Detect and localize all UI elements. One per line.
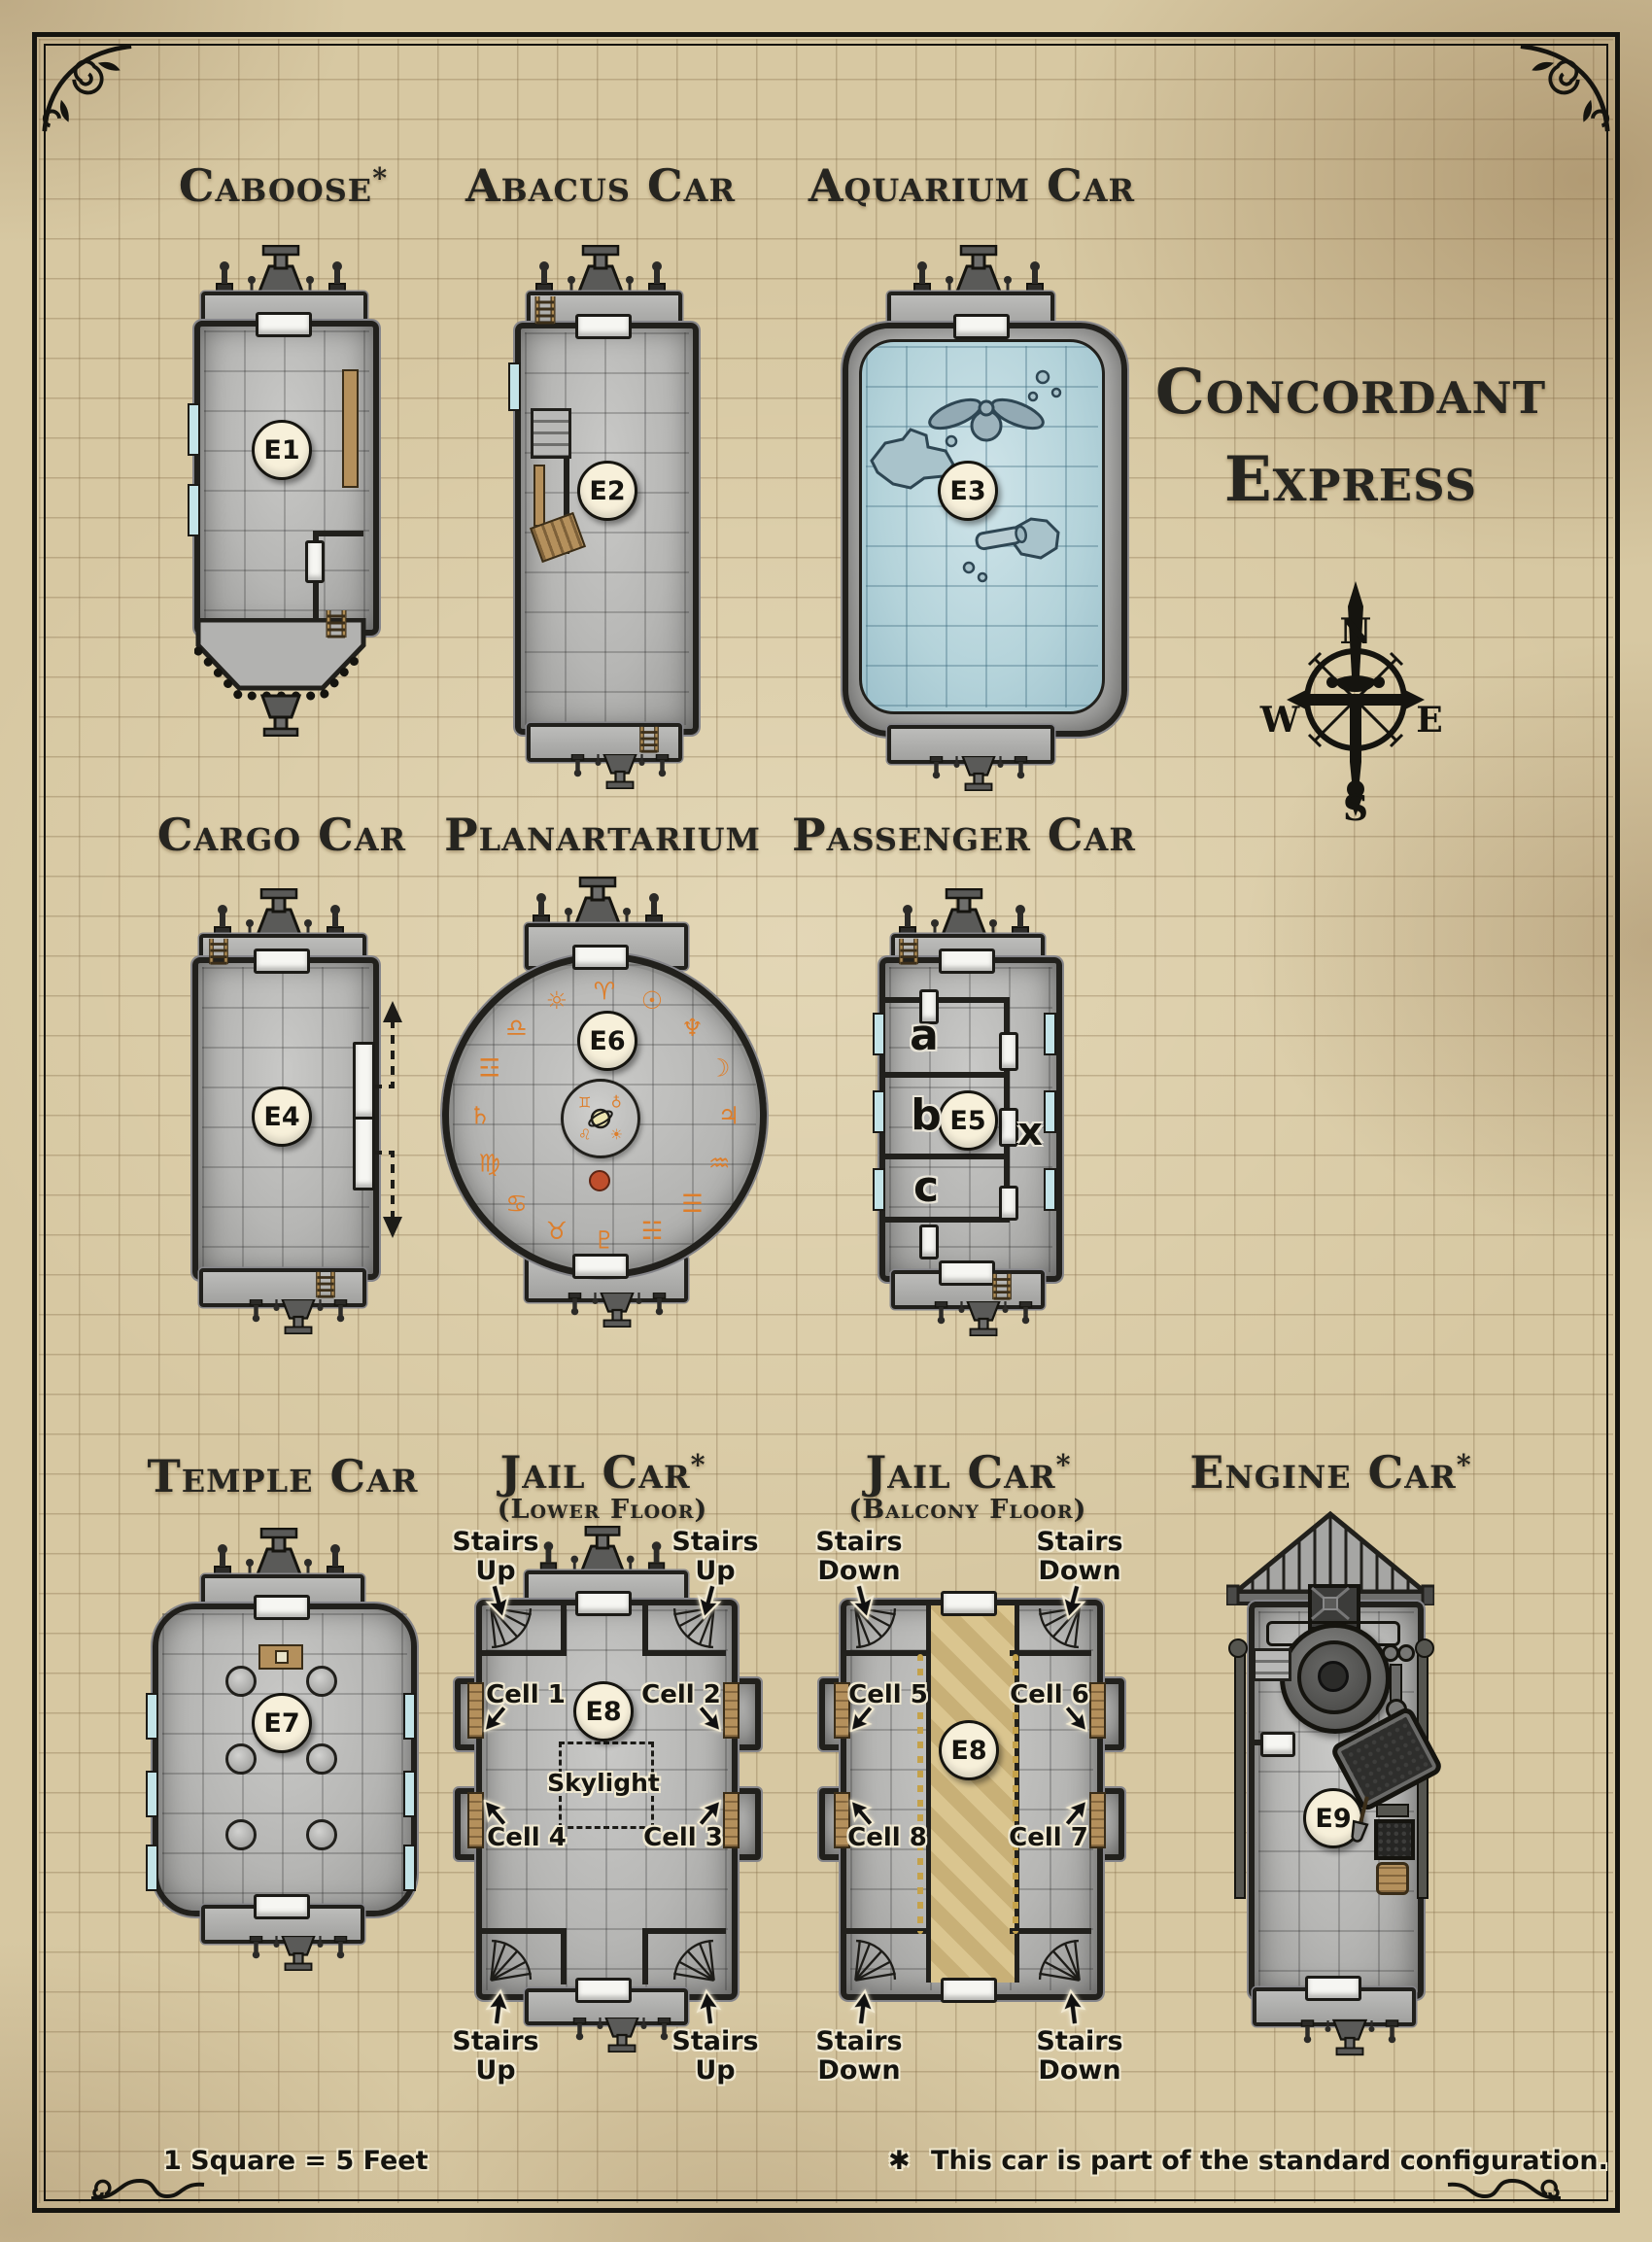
caboose-window: [188, 484, 200, 536]
planar-rune-icon: ♄: [469, 1102, 491, 1130]
passenger-room-divider: [885, 1217, 1010, 1223]
jail-balcony-title-text: Jail Car: [865, 1446, 1055, 1499]
map-title-line2: Express: [1224, 449, 1477, 511]
map-title-text2: Express: [1224, 443, 1477, 516]
temple-marker-text: E7: [263, 1708, 299, 1739]
planar-rune-icon: ☵: [641, 1217, 663, 1245]
stairs-word: Stairs: [449, 1528, 542, 1557]
temple-column: [225, 1743, 257, 1775]
planar-rune-icon: ☼: [546, 986, 568, 1015]
spiral-stairs-icon: [667, 1938, 721, 1983]
planartarium-marker-text: E6: [589, 1026, 625, 1056]
engine-rear-door: [1305, 1976, 1361, 2001]
stairs-dir: Down: [1033, 1557, 1126, 1586]
cell-door: [723, 1682, 740, 1739]
caboose-marker-text: E1: [263, 435, 299, 466]
abacus-window: [508, 362, 521, 411]
room-b-label: b: [911, 1090, 942, 1140]
jail-lower-rear-door: [575, 1978, 632, 2003]
temple-column: [225, 1666, 257, 1697]
stair-room-wall: [1010, 1650, 1091, 1656]
map-title-line1: Concordant: [1155, 362, 1546, 424]
cargo-side-door: [353, 1117, 375, 1190]
planar-rune-icon: ☽: [708, 1054, 730, 1083]
abacus-steps: [531, 408, 571, 459]
compass-west-label: W: [1260, 700, 1299, 741]
passenger-compartment-door: [919, 1224, 939, 1259]
temple-title: Temple Car: [147, 1454, 418, 1499]
jail-balcony-star: *: [1056, 1448, 1071, 1481]
planartarium-rear-door: [572, 1254, 629, 1279]
engine-marker-text: E9: [1315, 1804, 1351, 1834]
roof-coupler-icon: [201, 888, 357, 935]
caboose-title: Caboose*: [179, 163, 387, 208]
planartarium-title: Planartarium: [444, 812, 761, 857]
engine-rod-cap: [1228, 1638, 1248, 1658]
temple-title-text: Temple Car: [147, 1450, 418, 1502]
jail-lower-star: *: [691, 1448, 706, 1481]
stair-room-wall: [642, 1650, 726, 1656]
stair-room-wall: [642, 1605, 648, 1654]
temple-window: [403, 1771, 416, 1817]
engine-bolt: [1397, 1644, 1415, 1662]
stair-room-wall: [846, 1650, 928, 1656]
stairs-word: Stairs: [812, 2027, 906, 2056]
stairs-down-label: StairsDown: [812, 2027, 906, 2085]
jail-lower-title-text: Jail Car: [499, 1446, 690, 1499]
stairs-word: Stairs: [669, 2027, 762, 2056]
aquarium-title-text: Aquarium Car: [809, 159, 1135, 212]
cargo-marker-text: E4: [263, 1102, 299, 1132]
engine-crate: [1376, 1862, 1409, 1895]
bottom-coupler-icon: [925, 1301, 1042, 1336]
engine-title: Engine Car*: [1189, 1450, 1470, 1495]
abacus-front-door: [575, 314, 632, 339]
temple-window: [146, 1693, 158, 1740]
caboose-window: [188, 403, 200, 456]
roof-coupler-icon: [886, 888, 1042, 935]
caboose-cabin-wall: [313, 531, 363, 536]
stairs-down-label: StairsDown: [812, 1528, 906, 1585]
roof-coupler-icon: [201, 1528, 357, 1574]
cargo-title-text: Cargo Car: [157, 809, 406, 861]
planartarium-front-door: [572, 945, 629, 970]
aquarium-marker-text: E3: [949, 476, 985, 506]
stairs-up-label: StairsUp: [449, 1528, 542, 1585]
footnote-star-icon: ✱: [888, 2146, 911, 2176]
temple-window: [403, 1845, 416, 1891]
passenger-window: [1044, 1168, 1056, 1211]
scroll-wave-icon: [89, 2173, 206, 2202]
jail-balcony-rear-door: [941, 1978, 997, 2003]
skylight-label: Skylight: [547, 1769, 660, 1797]
jail-lower-title: Jail Car*: [499, 1450, 705, 1495]
engine-side-rod: [1234, 1652, 1246, 1899]
train-map-page: Concordant Express N W E S Caboose*: [0, 0, 1652, 2242]
planartarium-marker: E6: [577, 1011, 637, 1071]
jail-lower-marker: E8: [573, 1681, 634, 1742]
footnote: ✱ This car is part of the standard confi…: [888, 2146, 1608, 2176]
engine-boiler-hub: [1318, 1661, 1349, 1692]
passenger-compartment-door: [999, 1032, 1018, 1071]
passenger-room-divider: [885, 1072, 1010, 1078]
bottom-coupler-icon: [564, 2018, 680, 2052]
abacus-title: Abacus Car: [465, 163, 736, 208]
roof-coupler-icon: [901, 245, 1056, 292]
ladder-icon: [206, 937, 231, 966]
caboose-cabin-door: [305, 540, 325, 583]
passenger-window: [1044, 1090, 1056, 1133]
engine-star: *: [1457, 1448, 1471, 1481]
ladder-icon: [989, 1272, 1015, 1301]
passenger-rear-door: [939, 1260, 995, 1286]
engine-rod-cap: [1415, 1638, 1434, 1658]
passenger-compartment-door: [999, 1186, 1018, 1221]
spiral-stairs-icon: [484, 1938, 538, 1983]
planar-rune-icon: ♎: [505, 1014, 527, 1042]
stairs-dir: Up: [669, 2056, 762, 2086]
abacus-marker: E2: [577, 461, 637, 521]
arrow-icon: [848, 1987, 878, 2029]
stair-room-wall: [846, 1928, 928, 1934]
bottom-coupler-icon: [562, 754, 678, 789]
stairs-word: Stairs: [1033, 2027, 1126, 2056]
red-dot-token: [589, 1170, 610, 1191]
jail-balcony-subtitle: (Balcony Floor): [849, 1497, 1087, 1523]
ladder-icon: [324, 608, 349, 639]
caboose-marker: E1: [252, 420, 312, 480]
passenger-window: [873, 1013, 885, 1055]
passenger-window: [1044, 1013, 1056, 1055]
planar-rune-icon: ♃: [718, 1102, 740, 1130]
caboose-title-text: Caboose: [179, 159, 372, 212]
stairs-dir: Up: [669, 1557, 762, 1586]
engine-side-steps: [1253, 1648, 1291, 1681]
planar-rune-icon: ♉: [546, 1217, 568, 1245]
temple-front-door: [254, 1595, 310, 1620]
jail-lower-front-door: [575, 1591, 632, 1616]
jail-balcony-title: Jail Car*: [865, 1450, 1070, 1495]
roof-coupler-icon: [520, 877, 675, 923]
planar-rune-icon: ♋: [505, 1190, 527, 1218]
jail-lower-subtitle: (Lower Floor): [498, 1497, 708, 1523]
stairs-down-label: StairsDown: [1033, 1528, 1126, 1585]
abacus-marker-text: E2: [589, 476, 625, 506]
planar-rune-icon: ♇: [594, 1226, 615, 1255]
corridor-x-label: x: [1017, 1110, 1043, 1155]
orb-icon: [586, 1104, 615, 1133]
passenger-front-door: [939, 949, 995, 974]
passenger-marker: E5: [938, 1090, 998, 1151]
stairs-up-label: StairsUp: [669, 1528, 762, 1585]
temple-marker: E7: [252, 1693, 312, 1753]
cargo-title: Cargo Car: [157, 812, 406, 857]
arrow-icon: [484, 1987, 514, 2029]
planar-rune-icon: ☲: [479, 1054, 500, 1083]
coal-grate: [1376, 1804, 1409, 1817]
roof-coupler-icon: [203, 245, 359, 292]
passenger-room-divider: [885, 1154, 1010, 1159]
room-a-label: a: [910, 1011, 939, 1060]
ladder-icon: [896, 937, 921, 966]
footnote-text: This car is part of the standard configu…: [931, 2146, 1608, 2176]
planar-rune-icon: ☉: [641, 986, 663, 1015]
roof-coupler-icon: [525, 1526, 680, 1570]
cell-door: [723, 1792, 740, 1848]
bottom-coupler-icon: [559, 1293, 675, 1328]
corner-flourish-icon: [41, 41, 133, 133]
coal-box: [1374, 1819, 1415, 1860]
passenger-window: [873, 1090, 885, 1133]
temple-window: [146, 1771, 158, 1817]
passenger-marker-text: E5: [949, 1106, 985, 1136]
stair-room-wall: [1010, 1928, 1091, 1934]
jail-lower-marker-text: E8: [585, 1697, 621, 1727]
passenger-window: [873, 1168, 885, 1211]
stairs-word: Stairs: [449, 2027, 542, 2056]
compass-south-label: S: [1343, 788, 1368, 829]
stair-room-wall: [642, 1928, 726, 1934]
aquarium-marker: E3: [938, 461, 998, 521]
spiral-stairs-icon: [848, 1938, 903, 1983]
temple-altar-relic: [275, 1650, 289, 1664]
compass-east-label: E: [1416, 700, 1442, 741]
winged-statue-icon: [926, 394, 1047, 440]
corner-flourish-icon: [1519, 41, 1611, 133]
stair-room-wall: [642, 1930, 648, 1984]
temple-column: [225, 1819, 257, 1850]
caboose-front-door: [256, 312, 312, 337]
passenger-compartment-door: [999, 1108, 1018, 1147]
planar-rune-icon: ☰: [681, 1190, 703, 1218]
stair-room-wall: [561, 1930, 567, 1984]
stairs-dir: Up: [449, 2056, 542, 2086]
ladder-icon: [637, 725, 662, 754]
temple-column: [306, 1819, 337, 1850]
stairs-down-label: StairsDown: [1033, 2027, 1126, 2085]
caboose-star: *: [372, 161, 387, 194]
arrow-icon: [694, 1987, 724, 2029]
aquarium-contents: [843, 323, 1116, 725]
temple-window: [403, 1693, 416, 1740]
stairs-up-label: StairsUp: [449, 2027, 542, 2085]
jail-balcony-front-door: [941, 1591, 997, 1616]
cell-door: [1089, 1682, 1106, 1739]
stairs-word: Stairs: [812, 1528, 906, 1557]
jail-balcony-marker-text: E8: [950, 1736, 986, 1766]
cargo-marker: E4: [252, 1087, 312, 1147]
stairs-up-label: StairsUp: [669, 2027, 762, 2085]
planar-rune-icon: ♆: [681, 1014, 703, 1042]
passenger-title: Passenger Car: [792, 812, 1136, 857]
bottom-coupler-icon: [920, 756, 1037, 791]
stair-room-wall: [561, 1605, 567, 1654]
passenger-interior-wall: [885, 997, 1010, 1003]
open-to-below-walkway: [926, 1605, 1019, 1983]
planar-rune-icon: ♍: [479, 1149, 500, 1177]
cell-door: [1089, 1792, 1106, 1848]
compass-north-label: N: [1340, 611, 1372, 652]
roof-coupler-icon: [523, 245, 678, 292]
caboose-bench: [342, 369, 359, 488]
scale-note: 1 Square = 5 Feet: [163, 2146, 429, 2176]
planar-rune-icon: ♒: [708, 1149, 730, 1177]
ladder-icon: [533, 294, 558, 326]
door-slide-arrow-up: [371, 999, 412, 1090]
stairs-dir: Down: [812, 2056, 906, 2086]
map-title-text1: Concordant: [1155, 356, 1546, 429]
temple-rear-door: [254, 1894, 310, 1919]
jail-balcony-subtitle-text: (Balcony Floor): [849, 1495, 1087, 1525]
room-c-label: c: [913, 1162, 939, 1212]
passenger-title-text: Passenger Car: [792, 809, 1136, 861]
temple-column: [306, 1743, 337, 1775]
door-slide-arrow-down: [371, 1149, 412, 1240]
stair-room-wall: [482, 1650, 567, 1656]
cargo-front-door: [254, 949, 310, 974]
temple-column: [306, 1666, 337, 1697]
jail-balcony-marker: E8: [939, 1720, 999, 1780]
bottom-coupler-icon: [240, 1299, 357, 1334]
spiral-stairs-icon: [1032, 1938, 1086, 1983]
ladder-icon: [313, 1270, 338, 1299]
cargo-side-door: [353, 1042, 375, 1120]
stair-room-wall: [482, 1928, 567, 1934]
temple-window: [146, 1845, 158, 1891]
stairs-word: Stairs: [669, 1528, 762, 1557]
stairs-word: Stairs: [1033, 1528, 1126, 1557]
scroll-wave-icon: [1446, 2173, 1563, 2202]
engine-title-text: Engine Car: [1189, 1446, 1456, 1499]
stairs-dir: Down: [1033, 2056, 1126, 2086]
abacus-title-text: Abacus Car: [465, 159, 736, 212]
stairs-dir: Down: [812, 1557, 906, 1586]
aquarium-title: Aquarium Car: [809, 163, 1135, 208]
planar-rune-icon: ♈: [594, 978, 615, 1006]
bottom-coupler-icon: [1291, 2018, 1408, 2057]
arrow-icon: [1058, 1987, 1088, 2029]
planartarium-title-text: Planartarium: [444, 809, 761, 861]
engine-cab-door: [1260, 1732, 1295, 1757]
bottom-coupler-icon: [240, 1936, 357, 1971]
planartarium-inner-dais: ♁ ☀ ♌ ♊: [561, 1079, 640, 1158]
abacus-rod: [533, 465, 545, 527]
jail-lower-subtitle-text: (Lower Floor): [498, 1495, 708, 1525]
